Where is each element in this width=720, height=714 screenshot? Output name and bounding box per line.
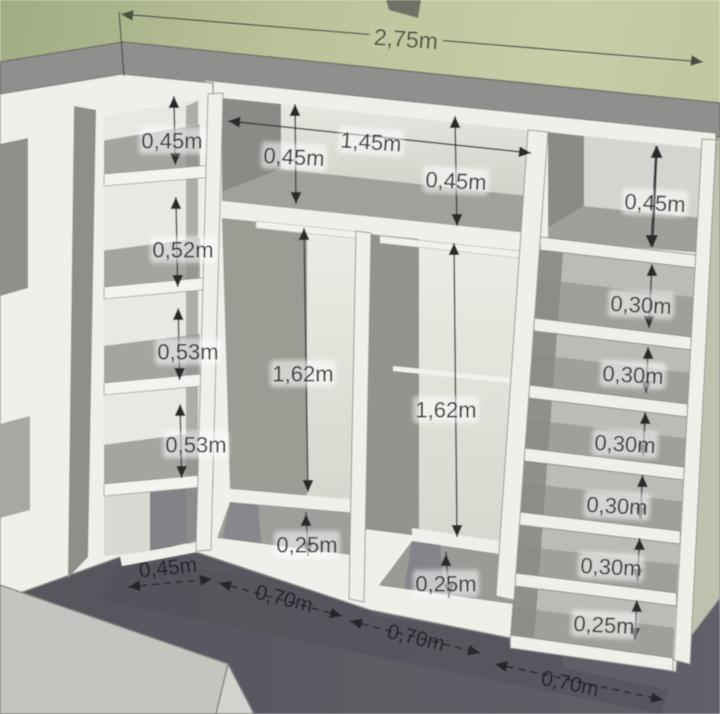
svg-text:0,53m: 0,53m <box>157 340 218 365</box>
svg-text:0,52m: 0,52m <box>152 238 213 263</box>
svg-text:0,53m: 0,53m <box>165 433 226 458</box>
svg-text:0,45m: 0,45m <box>263 143 325 171</box>
svg-text:0,45m: 0,45m <box>425 167 487 195</box>
svg-text:0,30m: 0,30m <box>580 553 642 581</box>
svg-text:1,45m: 1,45m <box>340 127 403 156</box>
svg-text:0,30m: 0,30m <box>594 430 656 458</box>
svg-text:2,75m: 2,75m <box>373 24 439 54</box>
svg-text:0,25m: 0,25m <box>276 533 337 558</box>
svg-text:0,30m: 0,30m <box>602 361 664 389</box>
svg-text:0,45m: 0,45m <box>141 129 202 154</box>
svg-text:0,25m: 0,25m <box>415 572 476 597</box>
svg-text:0,30m: 0,30m <box>610 291 672 319</box>
svg-text:1,62m: 1,62m <box>415 398 476 423</box>
svg-text:0,25m: 0,25m <box>573 611 635 639</box>
svg-text:0,30m: 0,30m <box>586 492 648 520</box>
svg-text:1,62m: 1,62m <box>272 362 333 387</box>
